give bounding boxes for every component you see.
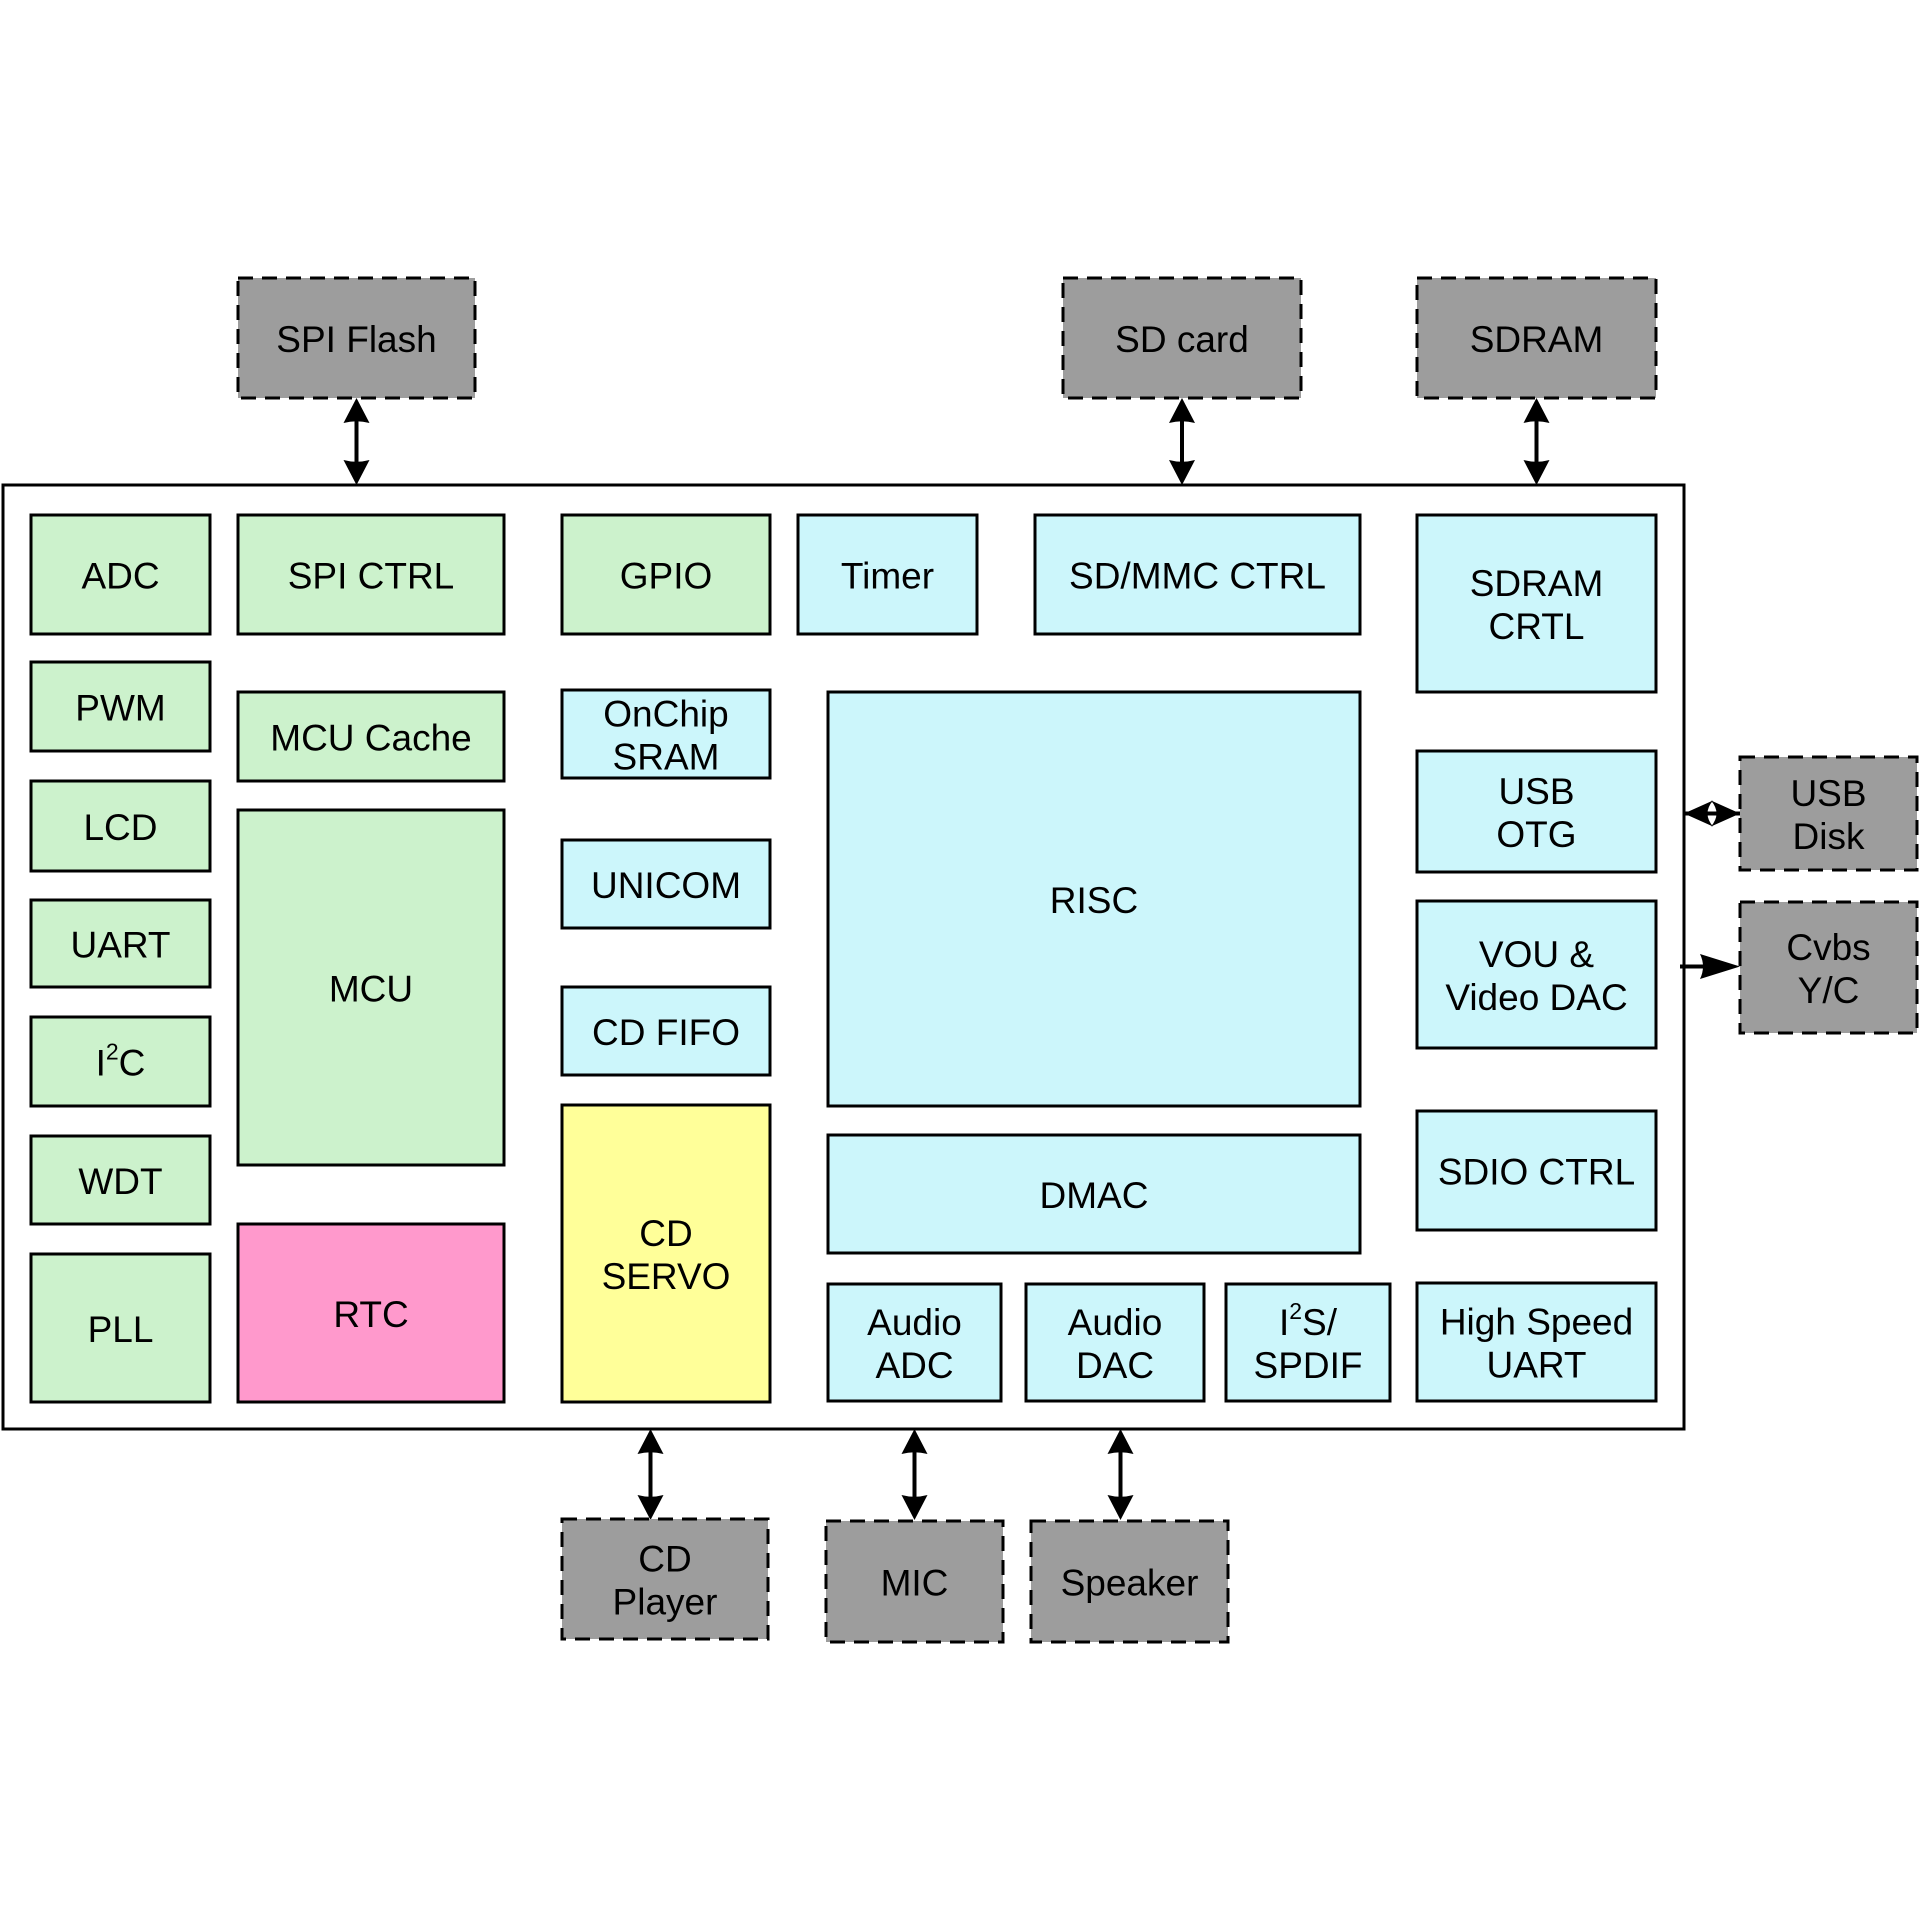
svg-text:SD/MMC CTRL: SD/MMC CTRL — [1069, 556, 1326, 597]
svg-text:High Speed: High Speed — [1440, 1302, 1633, 1343]
svg-text:SPI Flash: SPI Flash — [276, 319, 436, 360]
svg-text:VOU &: VOU & — [1479, 934, 1594, 975]
svg-text:SPI CTRL: SPI CTRL — [288, 556, 455, 597]
svg-text:Disk: Disk — [1793, 816, 1865, 857]
svg-text:PWM: PWM — [75, 688, 165, 729]
svg-text:DAC: DAC — [1076, 1345, 1154, 1386]
svg-text:USB: USB — [1498, 771, 1574, 812]
svg-text:SPDIF: SPDIF — [1254, 1345, 1363, 1386]
svg-text:SD card: SD card — [1115, 319, 1249, 360]
svg-text:DMAC: DMAC — [1040, 1175, 1149, 1216]
svg-text:Cvbs: Cvbs — [1786, 927, 1870, 968]
svg-text:ADC: ADC — [81, 556, 159, 597]
svg-text:LCD: LCD — [83, 807, 157, 848]
svg-text:Audio: Audio — [1068, 1302, 1163, 1343]
svg-text:SRAM: SRAM — [613, 737, 720, 778]
svg-text:MCU: MCU — [329, 969, 413, 1010]
svg-text:RISC: RISC — [1050, 880, 1138, 921]
svg-text:OTG: OTG — [1496, 814, 1576, 855]
svg-text:CD FIFO: CD FIFO — [592, 1012, 740, 1053]
svg-text:CD: CD — [639, 1213, 692, 1254]
svg-text:SDIO CTRL: SDIO CTRL — [1438, 1152, 1635, 1193]
svg-text:I2S/: I2S/ — [1279, 1298, 1338, 1343]
svg-text:Y/C: Y/C — [1798, 970, 1860, 1011]
svg-text:SERVO: SERVO — [602, 1256, 731, 1297]
svg-text:UNICOM: UNICOM — [591, 865, 741, 906]
svg-text:SDRAM: SDRAM — [1470, 563, 1604, 604]
svg-text:UART: UART — [70, 925, 170, 966]
svg-text:Audio: Audio — [867, 1302, 962, 1343]
svg-text:PLL: PLL — [88, 1309, 154, 1350]
svg-text:OnChip: OnChip — [603, 694, 728, 735]
svg-text:WDT: WDT — [78, 1161, 162, 1202]
svg-text:USB: USB — [1790, 773, 1866, 814]
svg-text:SDRAM: SDRAM — [1470, 319, 1604, 360]
svg-text:I2C: I2C — [96, 1039, 146, 1084]
svg-text:Player: Player — [613, 1582, 718, 1623]
svg-text:RTC: RTC — [333, 1294, 408, 1335]
svg-text:Timer: Timer — [841, 556, 934, 597]
svg-text:UART: UART — [1486, 1345, 1586, 1386]
svg-text:Video DAC: Video DAC — [1445, 977, 1627, 1018]
svg-text:CRTL: CRTL — [1489, 606, 1585, 647]
svg-text:CD: CD — [638, 1539, 691, 1580]
svg-text:ADC: ADC — [875, 1345, 953, 1386]
svg-text:Speaker: Speaker — [1061, 1563, 1199, 1604]
svg-text:MIC: MIC — [881, 1563, 949, 1604]
svg-text:MCU Cache: MCU Cache — [270, 718, 472, 759]
svg-text:GPIO: GPIO — [620, 556, 713, 597]
